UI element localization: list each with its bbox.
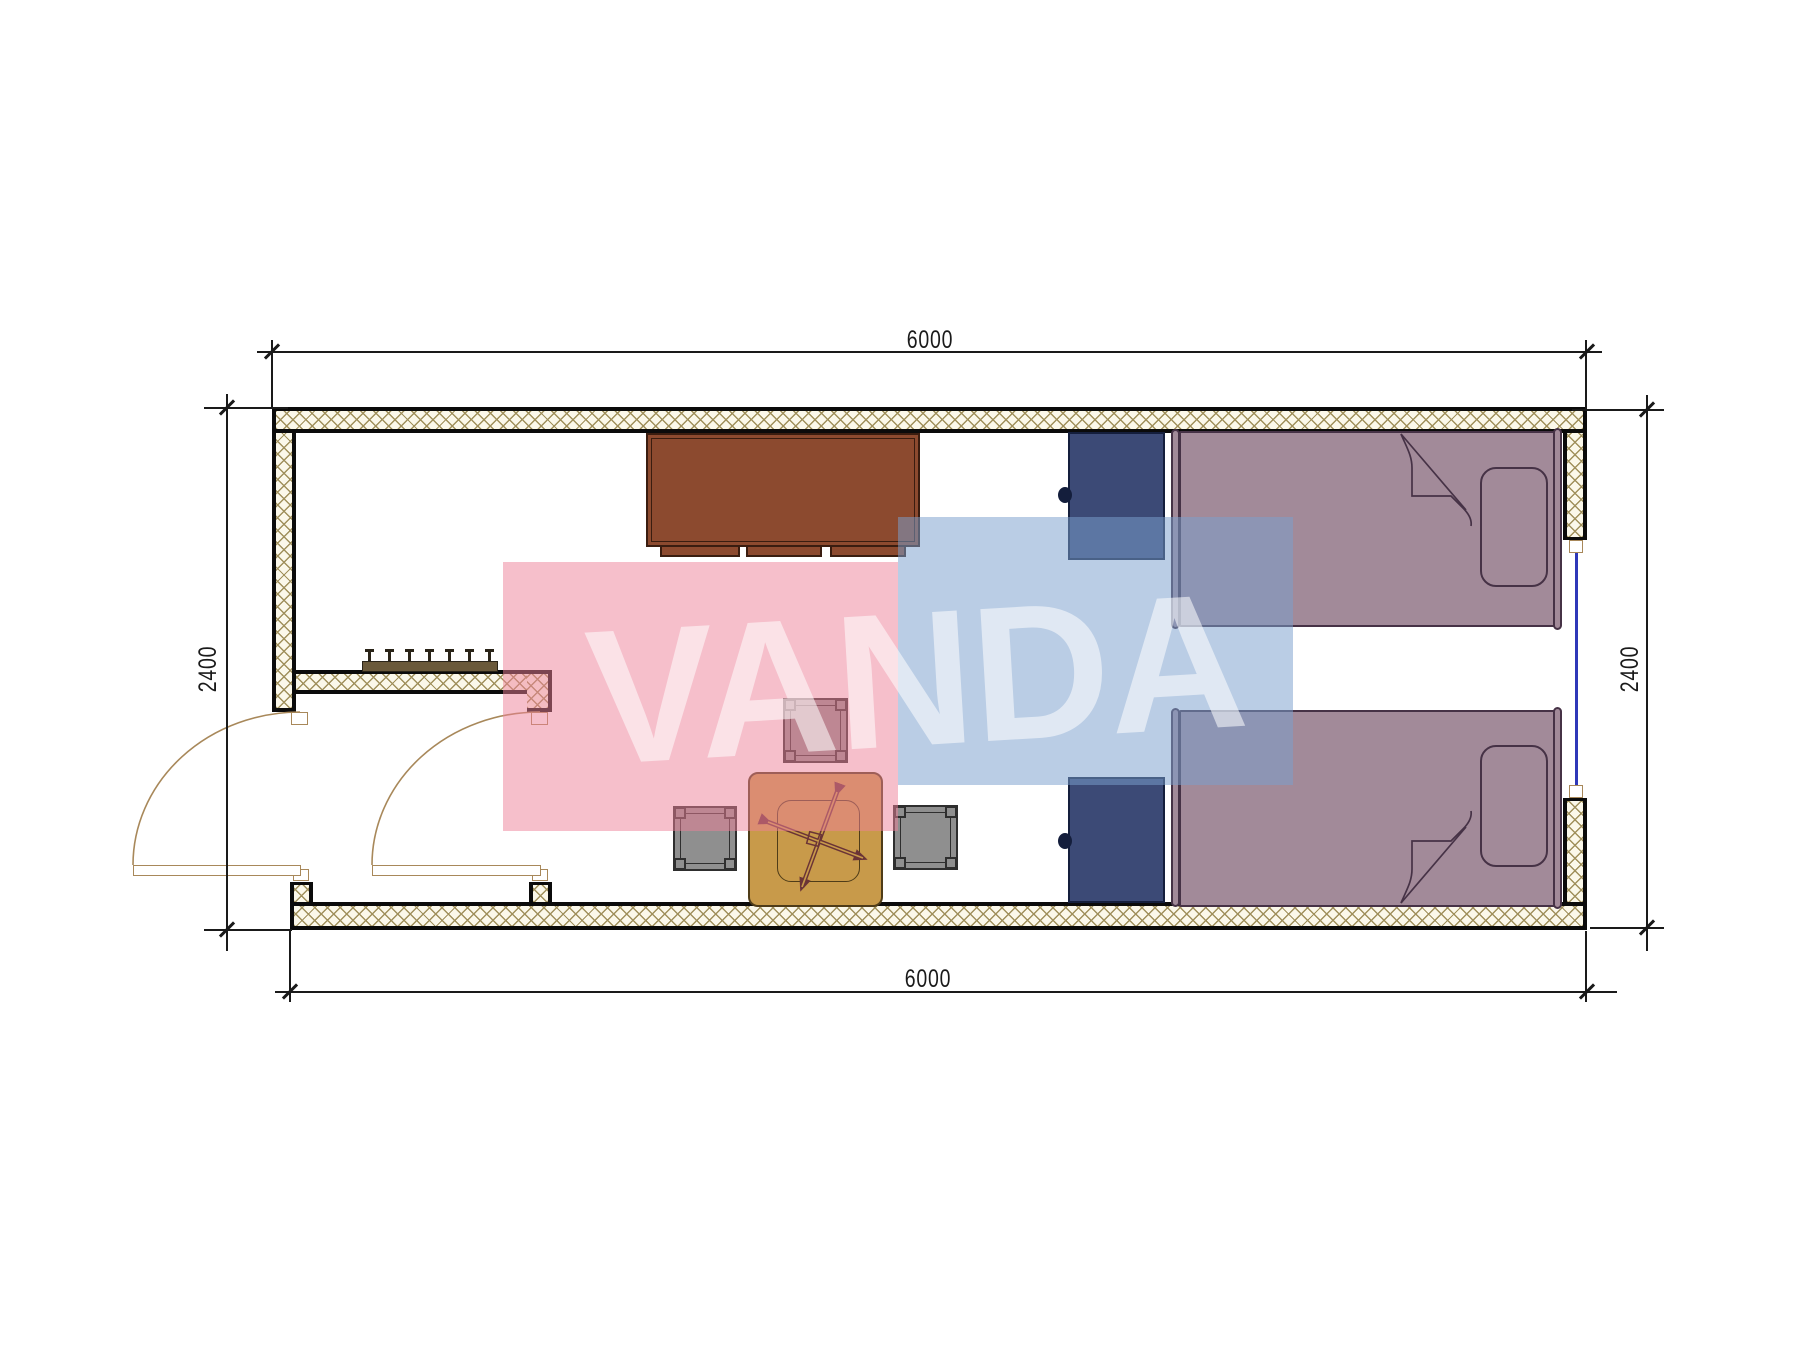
dim-ext-line bbox=[1572, 409, 1664, 411]
desk-inner-line bbox=[651, 438, 915, 542]
dim-label-left: 2400 bbox=[194, 614, 224, 723]
bed-headboard bbox=[1553, 428, 1562, 630]
dim-label-top: 6000 bbox=[875, 326, 984, 356]
wall-door-jamb-right bbox=[529, 882, 552, 902]
wall-left bbox=[272, 433, 296, 712]
window-glazing-line bbox=[1575, 553, 1578, 785]
door-leaf-2 bbox=[372, 865, 541, 876]
coat-hook bbox=[468, 649, 471, 661]
stool-leg bbox=[724, 858, 736, 870]
dim-label-bottom: 6000 bbox=[873, 965, 982, 995]
coat-hook bbox=[408, 649, 411, 661]
wall-right-lower bbox=[1563, 798, 1587, 902]
nightstand-top-knob bbox=[1058, 487, 1072, 503]
bed-headboard bbox=[1553, 707, 1562, 909]
stool-leg bbox=[894, 857, 906, 869]
bed-pillow bbox=[1480, 745, 1548, 867]
coat-hook bbox=[388, 649, 391, 661]
window-sill-top bbox=[1569, 540, 1583, 553]
dim-line-right bbox=[1646, 395, 1648, 951]
bed-pillow bbox=[1480, 467, 1548, 587]
dim-ext-line bbox=[204, 407, 288, 409]
dim-line-left bbox=[226, 394, 228, 951]
watermark-text: VANDA bbox=[581, 564, 1250, 795]
stool-right bbox=[893, 805, 958, 870]
wall-partition bbox=[296, 670, 527, 694]
door-sill-left-wall bbox=[291, 712, 308, 725]
nightstand-bottom-knob bbox=[1058, 833, 1072, 849]
desk-front-panel bbox=[746, 547, 822, 557]
door-leaf-1 bbox=[133, 865, 301, 876]
floor-plan: VANDA 6000 6000 2400 2400 bbox=[0, 0, 1800, 1350]
dim-label-right: 2400 bbox=[1616, 614, 1646, 723]
dim-ext-line bbox=[1590, 927, 1664, 929]
coat-rack bbox=[362, 661, 498, 672]
coat-hook bbox=[448, 649, 451, 661]
stool-seat-line bbox=[900, 812, 951, 863]
door-swing-arc-1 bbox=[133, 712, 300, 865]
desk-front-panel bbox=[830, 547, 906, 557]
wall-right-upper bbox=[1563, 433, 1587, 540]
stool-leg bbox=[945, 806, 957, 818]
dim-ext-line bbox=[204, 929, 292, 931]
window-sill-bottom bbox=[1569, 785, 1583, 798]
coat-hook bbox=[368, 649, 371, 661]
nightstand-bottom bbox=[1068, 777, 1165, 903]
coat-hook bbox=[428, 649, 431, 661]
stool-leg bbox=[674, 858, 686, 870]
wall-door-jamb-left bbox=[290, 882, 313, 902]
desk-front-panel bbox=[660, 547, 740, 557]
stool-leg bbox=[945, 857, 957, 869]
coat-hook bbox=[488, 649, 491, 661]
desk-cabinet bbox=[646, 433, 920, 547]
